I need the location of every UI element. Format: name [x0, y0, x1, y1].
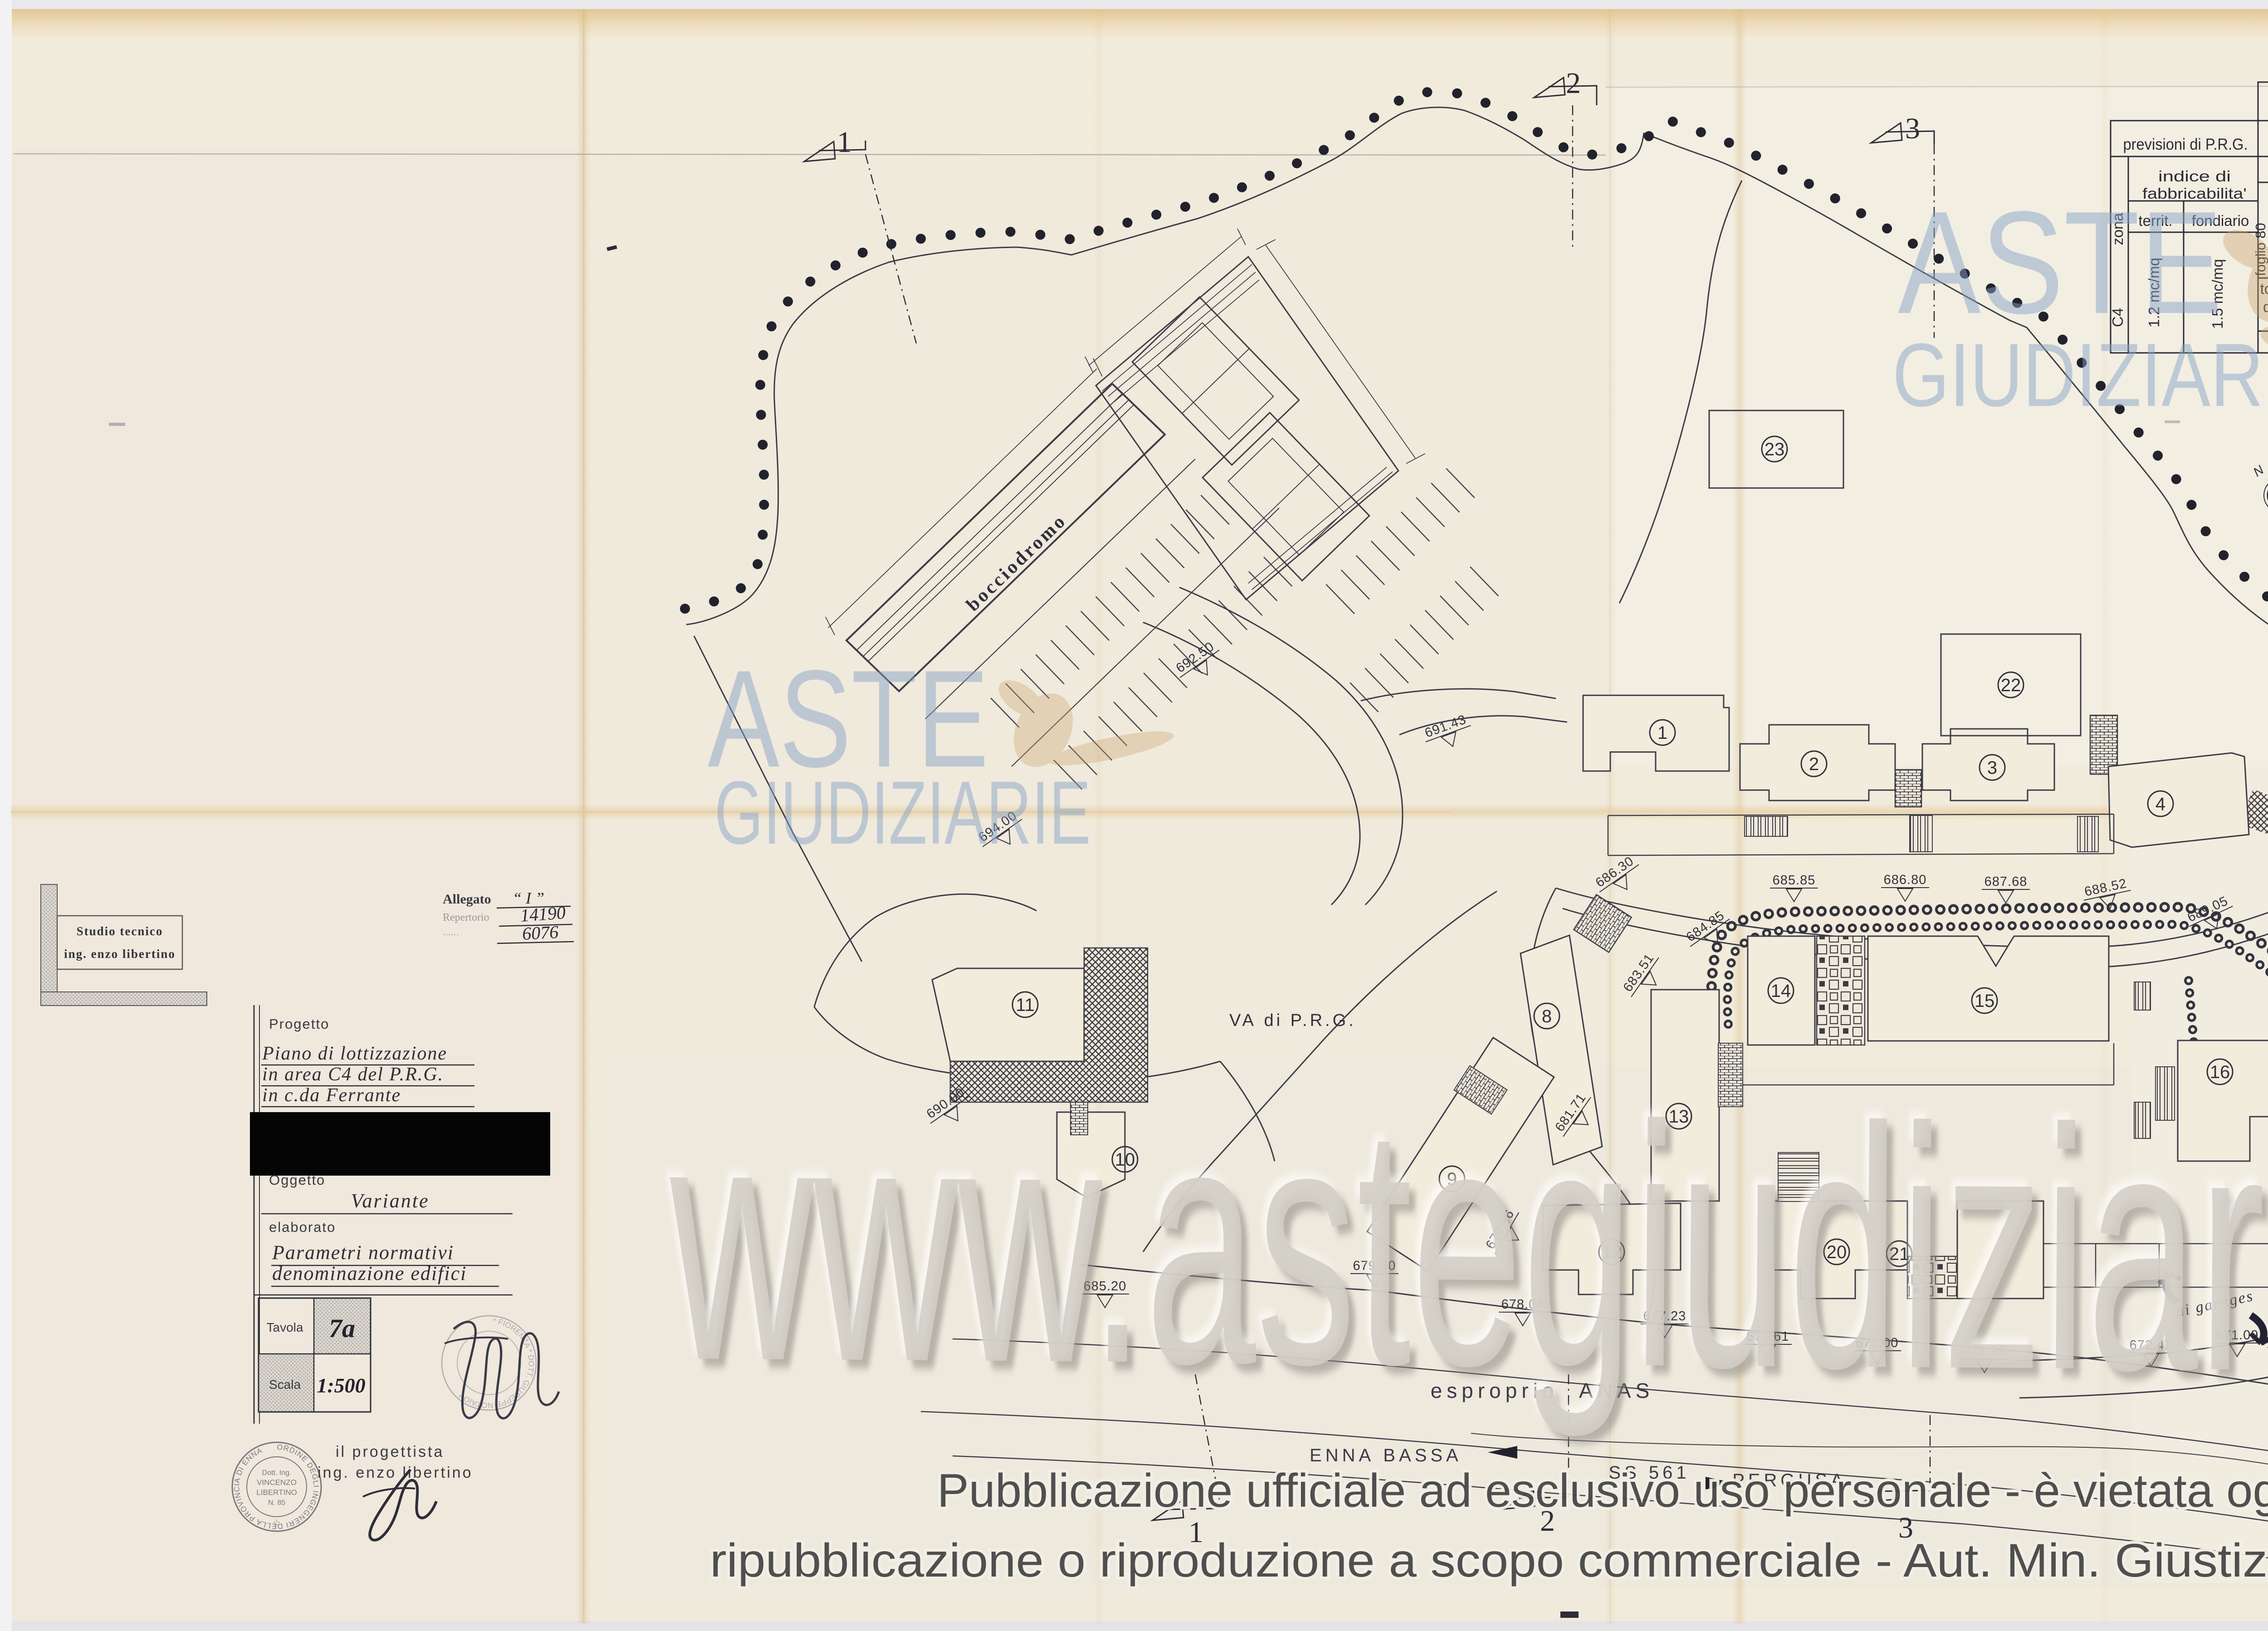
svg-text:Repertorio: Repertorio [443, 912, 489, 923]
svg-text:denominazione edifici: denominazione edifici [272, 1262, 467, 1284]
svg-text:www.astegiudiziarie.it: www.astegiudiziarie.it [665, 1048, 2268, 1447]
svg-text:22: 22 [2001, 675, 2021, 695]
svg-text:Piano di lottizzazione: Piano di lottizzazione [262, 1043, 447, 1064]
svg-text:in c.da Ferrante: in c.da Ferrante [262, 1085, 401, 1106]
svg-text:4: 4 [2156, 794, 2165, 814]
svg-text:Parametri normativi: Parametri normativi [272, 1241, 454, 1264]
svg-text:8: 8 [1542, 1006, 1552, 1026]
svg-text:in area C4 del P.R.G.: in area C4 del P.R.G. [262, 1064, 444, 1085]
svg-text:N. 85: N. 85 [268, 1499, 285, 1507]
svg-text:1:500: 1:500 [317, 1374, 365, 1397]
svg-text:2: 2 [1809, 754, 1819, 774]
svg-text:☆: ☆ [273, 1518, 281, 1528]
svg-text:......: ...... [443, 926, 459, 938]
svg-text:15: 15 [1975, 991, 1995, 1011]
svg-text:VA di P.R.G.: VA di P.R.G. [1229, 1011, 1356, 1030]
svg-text:685.85: 685.85 [1773, 873, 1816, 888]
svg-text:686.80: 686.80 [1884, 873, 1927, 887]
svg-text:ing. enzo libertino: ing. enzo libertino [318, 1464, 473, 1481]
svg-text:ripubblicazione o riproduzione: ripubblicazione o riproduzione a scopo c… [710, 1534, 2268, 1587]
svg-text:elaborato: elaborato [269, 1219, 336, 1235]
svg-text:GIUDIZIARIE: GIUDIZIARIE [714, 762, 1091, 863]
svg-text:1: 1 [837, 126, 852, 159]
svg-text:3: 3 [1905, 112, 1920, 145]
svg-text:Studio tecnico: Studio tecnico [77, 924, 163, 938]
svg-text:Variante: Variante [351, 1190, 429, 1212]
svg-text:11: 11 [1016, 995, 1035, 1015]
svg-text:Oggetto: Oggetto [269, 1172, 325, 1188]
svg-text:ing. enzo libertino: ing. enzo libertino [64, 947, 176, 961]
svg-text:23: 23 [1765, 439, 1785, 459]
svg-text:il progettista: il progettista [336, 1443, 444, 1460]
svg-text:Dott. Ing.: Dott. Ing. [262, 1469, 292, 1477]
svg-text:VINCENZO: VINCENZO [257, 1478, 297, 1487]
svg-text:14: 14 [1771, 981, 1791, 1001]
svg-text:ASTE: ASTE [1898, 181, 2223, 344]
svg-text:Scala: Scala [269, 1377, 301, 1392]
svg-text:LIBERTINO: LIBERTINO [256, 1488, 297, 1497]
svg-text:Tavola: Tavola [267, 1320, 303, 1334]
svg-text:ENNA BASSA: ENNA BASSA [1310, 1445, 1462, 1465]
svg-text:3: 3 [1987, 758, 1997, 778]
svg-text:6076: 6076 [522, 922, 559, 944]
svg-text:687.68: 687.68 [1984, 874, 2028, 889]
svg-text:previsioni di P.R.G.: previsioni di P.R.G. [2123, 136, 2248, 153]
svg-text:Pubblicazione ufficiale ad esc: Pubblicazione ufficiale ad esclusivo uso… [937, 1465, 2268, 1517]
svg-text:1: 1 [1657, 723, 1667, 743]
svg-text:Progetto: Progetto [269, 1016, 329, 1032]
svg-text:7a: 7a [329, 1314, 355, 1343]
svg-text:GIUDIZIARIE: GIUDIZIARIE [1892, 325, 2268, 425]
svg-text:2: 2 [1566, 67, 1581, 100]
svg-text:Allegato: Allegato [443, 892, 491, 907]
